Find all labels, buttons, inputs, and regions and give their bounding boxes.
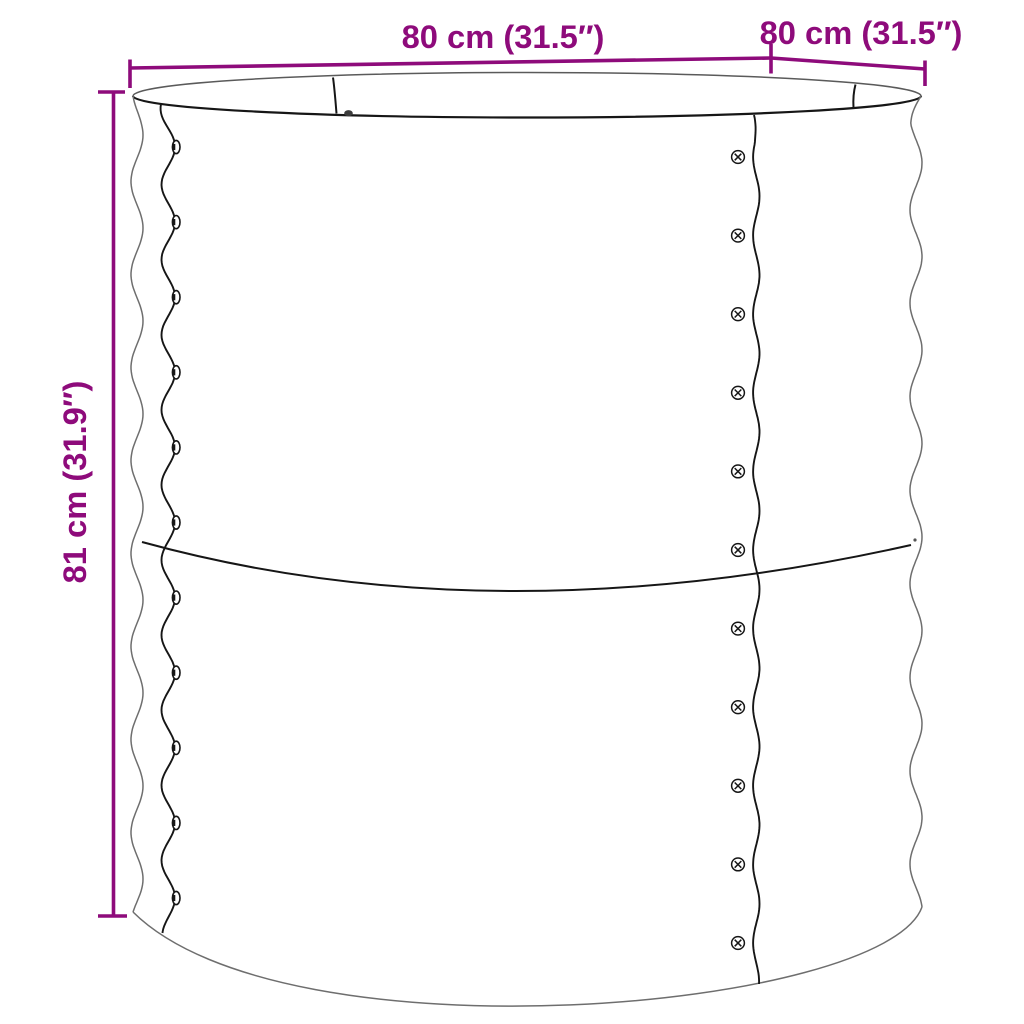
svg-text:80 cm (31.5″): 80 cm (31.5″) [402,18,605,55]
svg-text:81 cm (31.9″): 81 cm (31.9″) [56,381,93,584]
svg-text:80 cm (31.5″): 80 cm (31.5″) [760,14,963,51]
